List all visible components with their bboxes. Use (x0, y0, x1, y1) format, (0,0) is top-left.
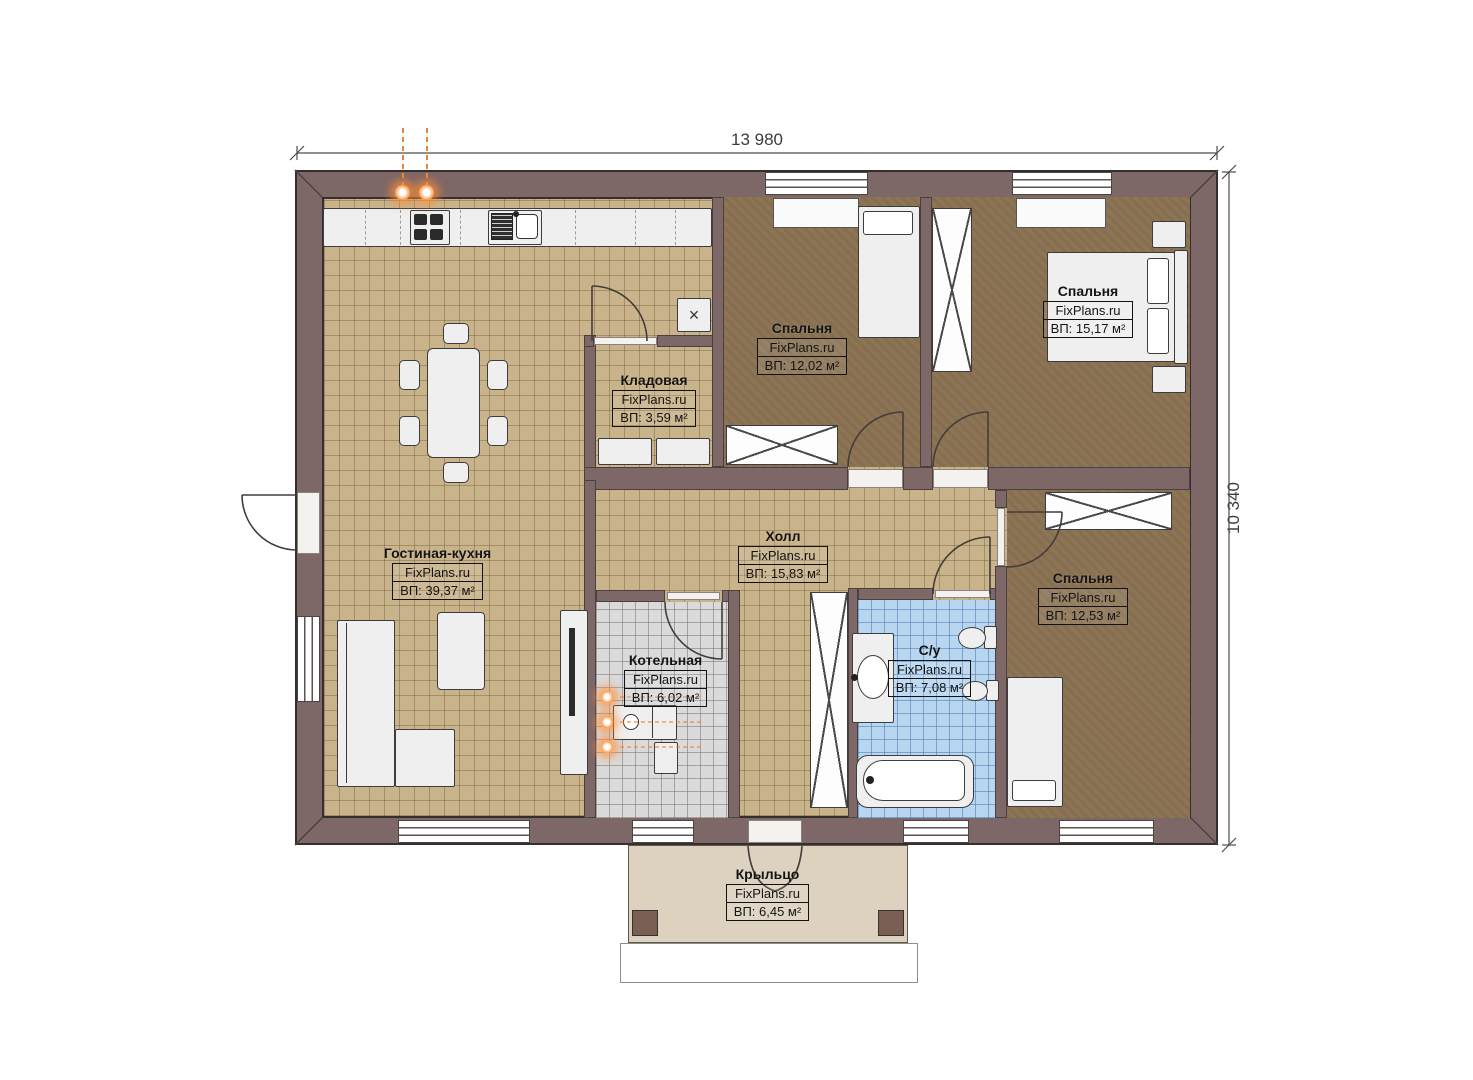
cabinet-divider (675, 210, 676, 245)
wardrobe (726, 425, 838, 465)
watermark: FixPlans.ru (613, 391, 694, 408)
wardrobe (1045, 492, 1172, 530)
cabinet-divider (460, 210, 461, 245)
room-info-box: FixPlans.ru ВП: 12,02 м² (757, 338, 848, 375)
stove-icon (410, 210, 450, 245)
pillow (1147, 308, 1169, 354)
porch-post-left (632, 910, 658, 936)
room-area: ВП: 12,02 м² (758, 356, 847, 374)
faucet (851, 674, 858, 681)
threshold-bathroom (935, 590, 990, 598)
room-label-bathroom: С/у FixPlans.ru ВП: 7,08 м² (872, 642, 987, 697)
pump-icon (623, 714, 639, 730)
sofa (337, 620, 395, 787)
radiator (1016, 198, 1106, 228)
window-top-2 (1012, 172, 1112, 195)
room-area: ВП: 6,45 м² (727, 902, 808, 920)
wall-pantry-top-a (584, 335, 594, 347)
room-label-pantry: Кладовая FixPlans.ru ВП: 3,59 м² (594, 372, 714, 427)
wall-bathroom-top-a (858, 588, 933, 600)
room-label-bedroom-top-right: Спальня FixPlans.ru ВП: 15,17 м² (1028, 283, 1148, 338)
radiator (773, 198, 859, 228)
vent-icon: × (677, 298, 711, 332)
room-name: Спальня (1018, 570, 1148, 586)
chair (487, 416, 508, 446)
room-info-box: FixPlans.ru ВП: 3,59 м² (612, 390, 695, 427)
sofa-chaise (395, 729, 455, 787)
watermark: FixPlans.ru (1039, 589, 1128, 606)
threshold-bedroom1 (848, 469, 903, 488)
room-info-box: FixPlans.ru ВП: 39,37 м² (392, 563, 483, 600)
room-name: Спальня (1028, 283, 1148, 299)
room-area: ВП: 12,53 м² (1039, 606, 1128, 624)
pillow (1147, 258, 1169, 304)
room-info-box: FixPlans.ru ВП: 6,02 м² (624, 670, 707, 707)
room-info-box: FixPlans.ru ВП: 7,08 м² (888, 660, 971, 697)
room-info-box: FixPlans.ru ВП: 15,17 м² (1043, 301, 1134, 338)
wall-bedroom1-bedroom2 (920, 197, 932, 467)
heating-manifold-icon (600, 715, 614, 729)
room-name: Гостиная-кухня (360, 545, 515, 561)
dimension-width-label: 13 980 (707, 130, 807, 150)
burner (430, 229, 443, 240)
room-area: ВП: 39,37 м² (393, 581, 482, 599)
bathtub-icon (856, 755, 974, 808)
window-bottom-2 (632, 820, 694, 843)
burner (414, 214, 427, 225)
room-info-box: FixPlans.ru ВП: 6,45 м² (726, 884, 809, 921)
window-bottom-4 (1059, 820, 1154, 843)
bed-single (1007, 677, 1063, 807)
room-info-box: FixPlans.ru ВП: 12,53 м² (1038, 588, 1129, 625)
porch-step (620, 943, 918, 983)
room-name: Котельная (608, 652, 723, 668)
sink-bowl (516, 214, 538, 239)
threshold-bedroom2 (933, 469, 988, 488)
room-area: ВП: 15,17 м² (1044, 319, 1133, 337)
wall-hall-north-c (988, 467, 1190, 490)
sink-drainer (491, 213, 513, 240)
watermark: FixPlans.ru (727, 885, 808, 902)
threshold-bedroom3 (997, 508, 1005, 566)
faucet (513, 211, 519, 217)
room-label-bedroom-bottom-right: Спальня FixPlans.ru ВП: 12,53 м² (1018, 570, 1148, 625)
window-left (297, 616, 320, 702)
headboard (1174, 250, 1188, 364)
boiler-divider (652, 706, 653, 738)
room-name: С/у (872, 642, 987, 658)
heating-manifold-icon (600, 740, 614, 754)
sofa-seat-line (346, 623, 347, 783)
wardrobe (932, 208, 972, 372)
boiler-unit (613, 705, 677, 740)
watermark: FixPlans.ru (625, 671, 706, 688)
window-bottom-1 (398, 820, 530, 843)
chair (399, 360, 420, 390)
wall-boiler-right (728, 590, 740, 818)
window-top-1 (765, 172, 868, 195)
room-area: ВП: 3,59 м² (613, 408, 694, 426)
floor-plan-canvas: × (0, 0, 1473, 1080)
room-label-living-kitchen: Гостиная-кухня FixPlans.ru ВП: 39,37 м² (360, 545, 515, 600)
room-label-hall: Холл FixPlans.ru ВП: 15,83 м² (728, 528, 838, 583)
wall-hall-north-a (584, 467, 848, 490)
room-name: Кладовая (594, 372, 714, 388)
pillow (863, 211, 913, 235)
dining-table (427, 348, 480, 458)
nightstand (1152, 366, 1186, 393)
main-entrance-opening (748, 820, 802, 843)
room-info-box: FixPlans.ru ВП: 15,83 м² (738, 546, 829, 583)
chair (443, 462, 469, 483)
room-label-bedroom-top-middle: Спальня FixPlans.ru ВП: 12,02 м² (748, 320, 856, 375)
wall-bedroom3-left-a (995, 490, 1007, 508)
window-bottom-3 (903, 820, 969, 843)
pendant-light-icon (418, 184, 435, 201)
cabinet-divider (400, 210, 401, 245)
threshold-boiler (667, 592, 720, 600)
porch-post-right (878, 910, 904, 936)
room-label-boiler-room: Котельная FixPlans.ru ВП: 6,02 м² (608, 652, 723, 707)
watermark: FixPlans.ru (1044, 302, 1133, 319)
watermark: FixPlans.ru (739, 547, 828, 564)
room-label-porch: Крыльцо FixPlans.ru ВП: 6,45 м² (700, 866, 835, 921)
bed-single (858, 206, 920, 338)
pantry-shelf (598, 438, 652, 465)
coffee-table (437, 612, 485, 690)
pantry-shelf (656, 438, 710, 465)
chair (487, 360, 508, 390)
pillow (1012, 780, 1056, 801)
watermark: FixPlans.ru (758, 339, 847, 356)
hall-closet (810, 592, 848, 808)
watermark: FixPlans.ru (393, 564, 482, 581)
bathtub-inner (863, 760, 965, 801)
cabinet-divider (365, 210, 366, 245)
pendant-light-icon (394, 184, 411, 201)
burner (430, 214, 443, 225)
side-entrance-opening (297, 492, 320, 554)
cabinet-divider (575, 210, 576, 245)
room-name: Крыльцо (700, 866, 835, 882)
room-area: ВП: 15,83 м² (739, 564, 828, 582)
room-name: Холл (728, 528, 838, 544)
drain (866, 776, 874, 784)
tv-icon (569, 628, 575, 716)
room-area: ВП: 7,08 м² (889, 678, 970, 696)
chair (399, 416, 420, 446)
burner (414, 229, 427, 240)
room-name: Спальня (748, 320, 856, 336)
threshold-pantry (594, 337, 657, 345)
watermark: FixPlans.ru (889, 661, 970, 678)
dimension-height-label: 10 340 (1224, 473, 1244, 543)
boiler-cabinet (654, 742, 678, 774)
cabinet-divider (635, 210, 636, 245)
kitchen-sink-icon (488, 210, 542, 245)
room-area: ВП: 6,02 м² (625, 688, 706, 706)
nightstand (1152, 221, 1186, 248)
wall-boiler-top-a (596, 590, 665, 602)
chair (443, 323, 469, 344)
wall-hall-north-b (903, 467, 933, 490)
